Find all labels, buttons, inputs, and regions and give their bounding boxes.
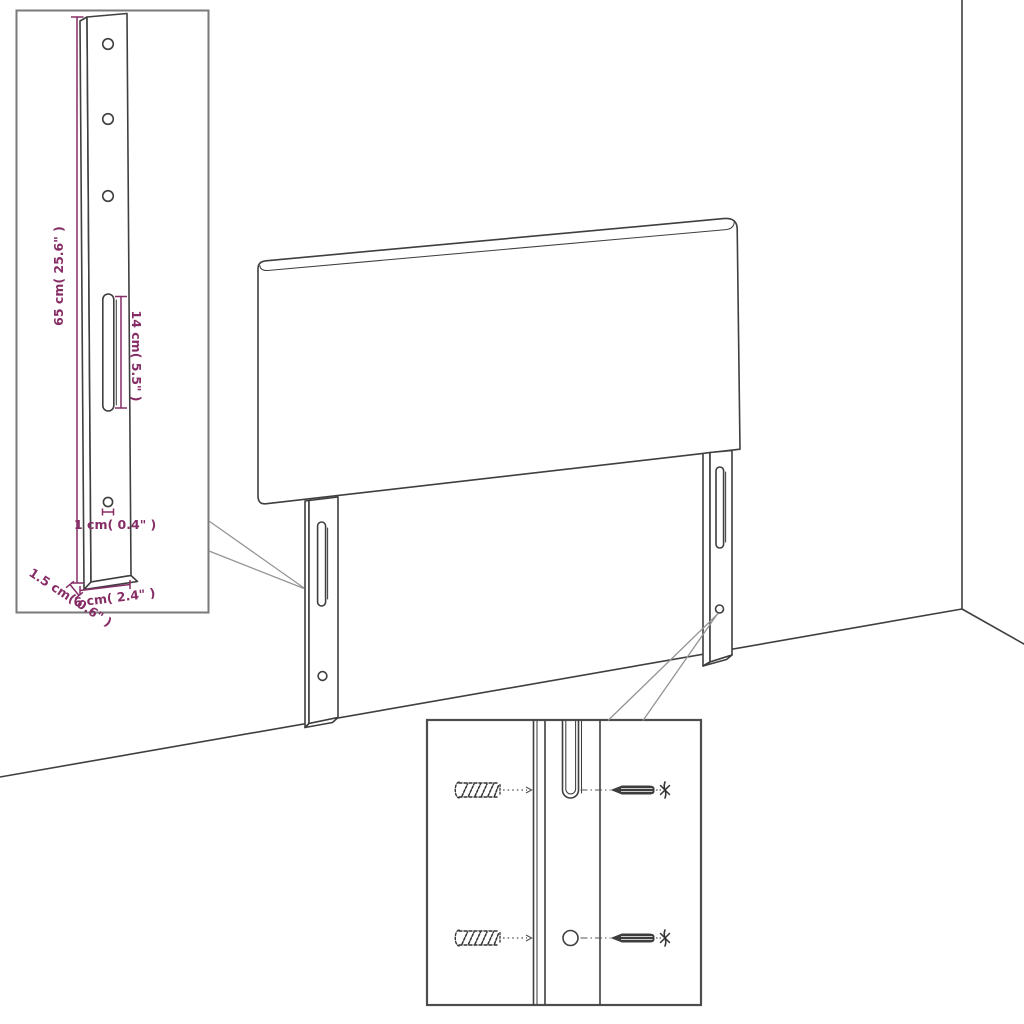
bracket-slot [103,294,114,411]
headboard-left-leg [305,497,338,728]
product-diagram: 65 cm( 25.6" ) 14 cm( 5.5" ) 1 cm( 0.4" … [0,0,1024,1024]
dim-slot-label: 14 cm( 5.5" ) [129,311,144,402]
bracket-inset-leaders [209,521,304,589]
hardware-inset-leaders [608,614,718,721]
hardware-inset-frame [427,720,701,1005]
bracket-hole-middle [103,114,114,125]
bracket-leader-upper [209,521,304,588]
dim-hole-label: 1 cm( 0.4" ) [74,517,156,532]
right-leg-hole [716,605,724,613]
right-leg-slot [716,467,724,548]
hardware-leader-right [643,615,717,721]
bracket-hole-bottom [103,191,114,202]
bracket-small-hole [103,497,112,506]
bracket-hole-top [103,39,114,50]
left-leg-slot [318,522,326,606]
left-leg-hole [318,672,327,681]
bracket-detail-inset: 65 cm( 25.6" ) 14 cm( 5.5" ) 1 cm( 0.4" … [17,11,209,630]
dim-height-label: 65 cm( 25.6" ) [51,226,66,326]
headboard-front-face [258,218,740,503]
headboard-panel [258,218,740,503]
floor-wall-line-right [962,609,1024,644]
hardware-detail-inset [427,720,701,1005]
headboard-right-leg [703,451,732,667]
bracket-leader-lower [209,551,304,589]
diagram-svg: 65 cm( 25.6" ) 14 cm( 5.5" ) 1 cm( 0.4" … [0,0,1024,1024]
hardware-leader-left [608,614,718,721]
